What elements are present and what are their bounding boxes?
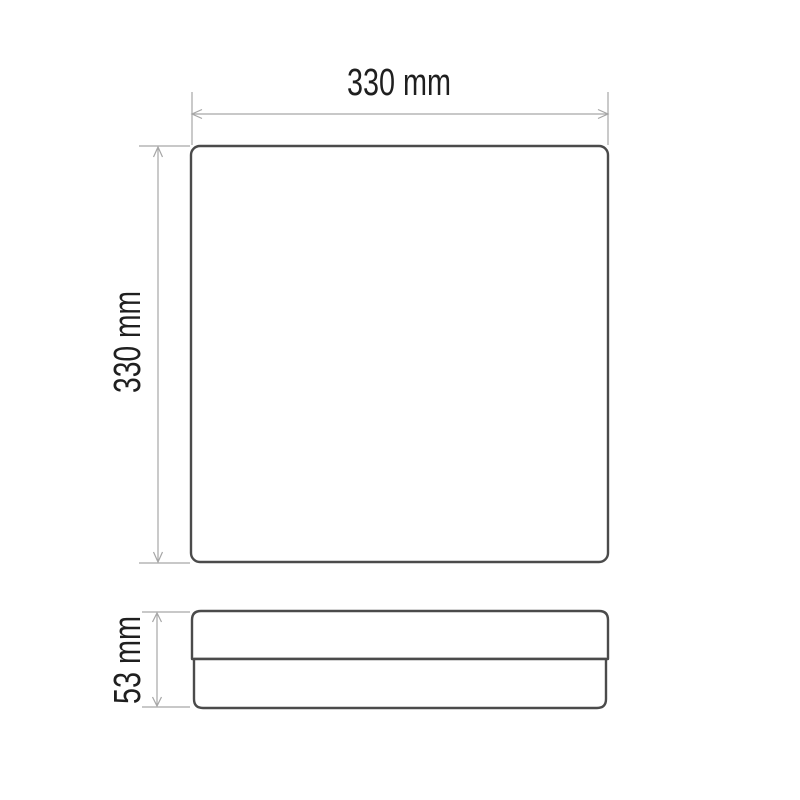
side-view-lower-body [194,659,606,708]
drawing-svg: 330 mm 330 mm 53 mm [0,0,800,800]
depth-dimension-label: 53 mm [107,616,149,704]
top-view-outline [191,146,608,562]
product-outlines [191,146,608,708]
depth-dimension [142,612,190,707]
dimension-drawing: 330 mm 330 mm 53 mm [0,0,800,800]
width-dimension-label: 330 mm [347,62,451,104]
height-dimension-label: 330 mm [107,291,149,393]
side-view-upper-body [192,611,608,659]
